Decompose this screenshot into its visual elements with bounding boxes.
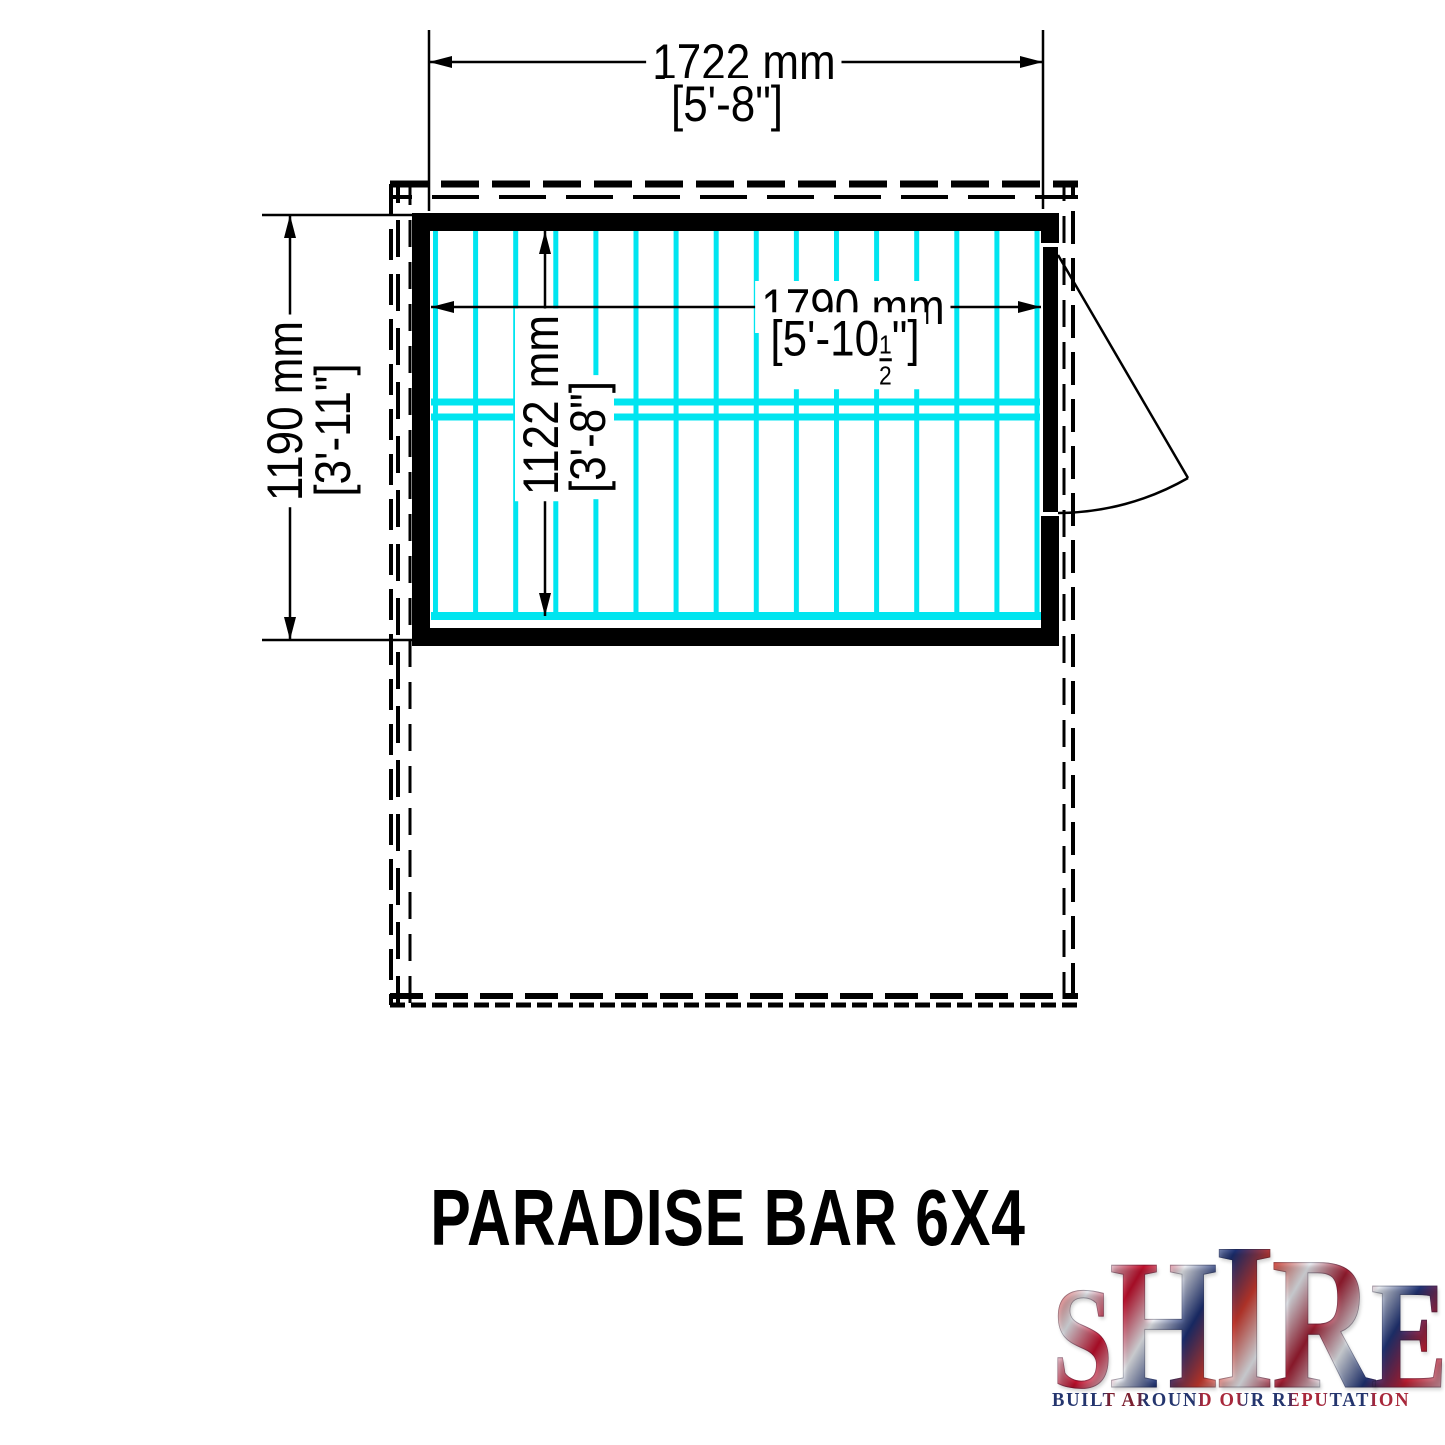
dimension-internal-depth-imperial: [3'-8"]	[562, 375, 614, 499]
fraction-denominator: 2	[879, 358, 892, 389]
product-floor-plan: 1722 mm [5'-8"] 1190 mm [3'-11"] 1790 mm…	[0, 0, 1445, 1445]
dimension-external-width-imperial: [5'-8"]	[665, 78, 789, 130]
logo-tagline: BUILT AROUND OUR REPUTATION	[1052, 1389, 1410, 1412]
door	[1040, 243, 1188, 516]
door-open-line	[1058, 255, 1188, 478]
product-title: PARADISE BAR 6X4	[430, 1172, 1026, 1264]
dimension-external-depth-imperial: [3'-11"]	[307, 357, 359, 503]
dimension-external-depth-metric: 1190 mm	[259, 315, 311, 507]
imperial-suffix: "]	[892, 310, 920, 366]
door-swing-arc	[1058, 478, 1188, 513]
dimension-internal-width-imperial: [5'-1012"]	[764, 312, 926, 389]
imperial-prefix: [5'-10	[770, 310, 879, 366]
fraction-half: 12	[879, 332, 892, 389]
fraction-numerator: 1	[879, 332, 892, 359]
door-leaf	[1043, 247, 1058, 512]
